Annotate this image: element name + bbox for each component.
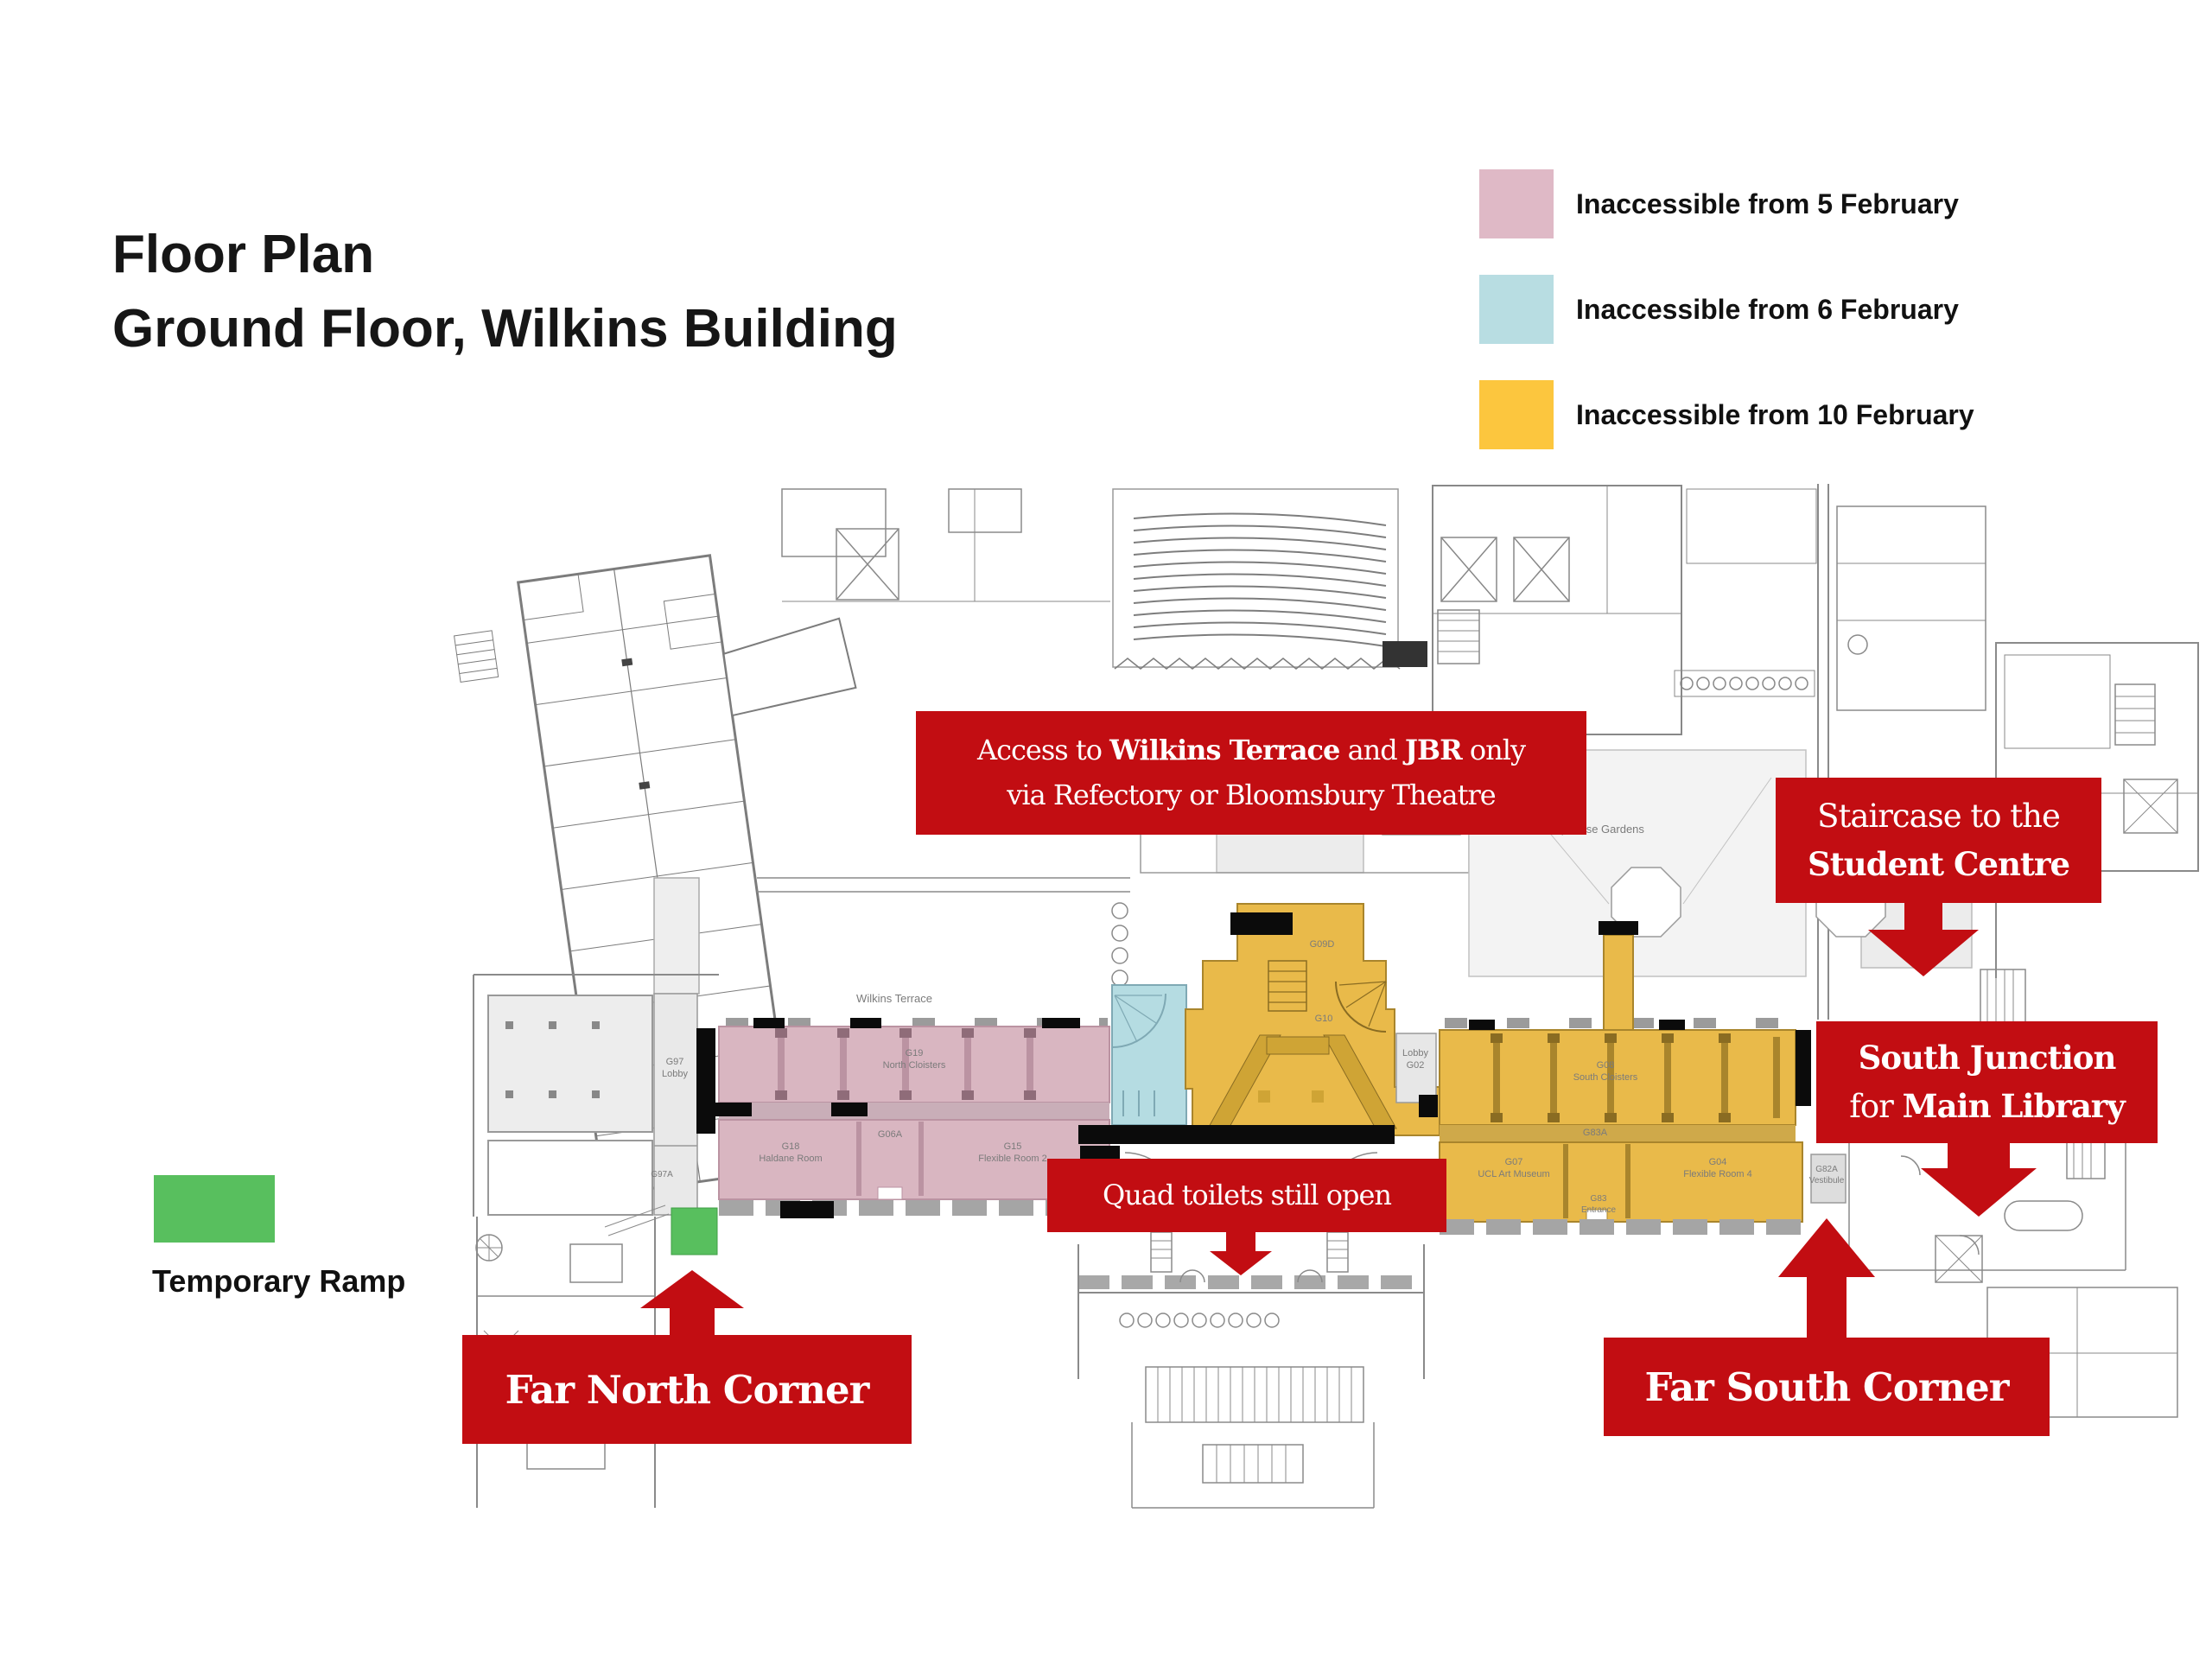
legend-swatch-yellow [1479,380,1554,449]
arrow-south-junction-down [1921,1141,2037,1217]
bloomsbury-theatre-seating [1113,489,1427,669]
east-wing [1818,484,2198,1027]
svg-text:G10: G10 [1315,1014,1333,1024]
blue-zone [1112,985,1186,1125]
callout-far-north-corner: Far North Corner [462,1335,912,1444]
legend-swatch-pink [1479,169,1554,238]
callout-access-note: Access to Wilkins Terrace and JBR onlyvi… [916,711,1586,835]
ramp-marker [671,1208,717,1255]
svg-text:Wilkins Terrace: Wilkins Terrace [856,992,932,1005]
legend-label: Inaccessible from 10 February [1576,399,1974,431]
arrow-far-south-up [1778,1218,1875,1348]
svg-text:G06A: G06A [878,1129,903,1140]
callout-south-junction: South Junctionfor Main Library [1816,1021,2158,1143]
legend-label: Inaccessible from 6 February [1576,294,1959,326]
legend-item-10-feb: Inaccessible from 10 February [1479,380,1974,449]
title-line-1: Floor Plan [112,218,898,292]
arrow-quad-down [1210,1230,1272,1275]
ramp-legend-swatch [154,1175,275,1243]
legend-item-6-feb: Inaccessible from 6 February [1479,275,1974,344]
callout-staircase-student-centre: Staircase to theStudent Centre [1776,778,2101,903]
svg-text:G83A: G83A [1583,1128,1608,1138]
callout-quad-toilets: Quad toilets still open [1047,1159,1446,1232]
slide: { "header": { "title_line1": "Floor Plan… [0,0,2212,1659]
legend-item-5-feb: Inaccessible from 5 February [1479,169,1974,238]
legend-label: Inaccessible from 5 February [1576,188,1959,220]
legend-swatch-blue [1479,275,1554,344]
svg-text:G09D: G09D [1310,939,1335,950]
legend: Inaccessible from 5 February Inaccessibl… [1479,169,1974,486]
yellow-zone-south [1440,935,1846,1227]
title-line-2: Ground Floor, Wilkins Building [112,292,898,366]
page-title: Floor Plan Ground Floor, Wilkins Buildin… [112,218,898,365]
ramp-legend-label: Temporary Ramp [152,1263,405,1300]
callout-far-south-corner: Far South Corner [1604,1338,2050,1436]
top-right-rooms [1433,486,1816,734]
svg-text:G97A: G97A [651,1170,673,1179]
